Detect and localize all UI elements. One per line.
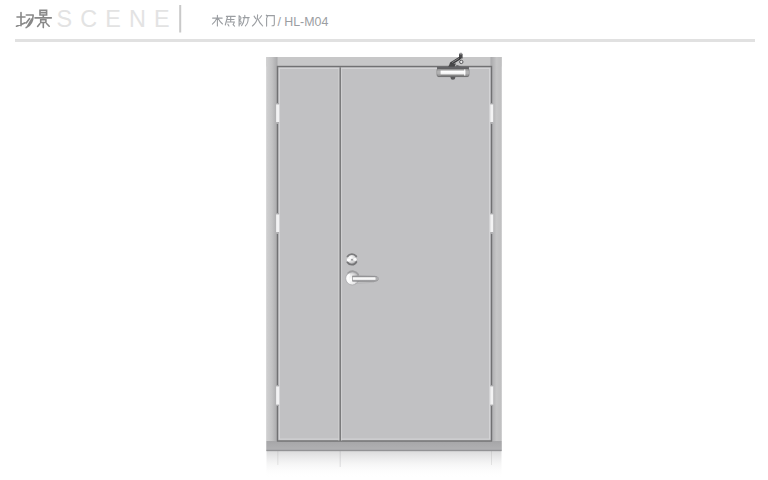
svg-text:SCENE: SCENE	[57, 6, 178, 32]
svg-text:/ HL-M04: / HL-M04	[277, 15, 328, 29]
